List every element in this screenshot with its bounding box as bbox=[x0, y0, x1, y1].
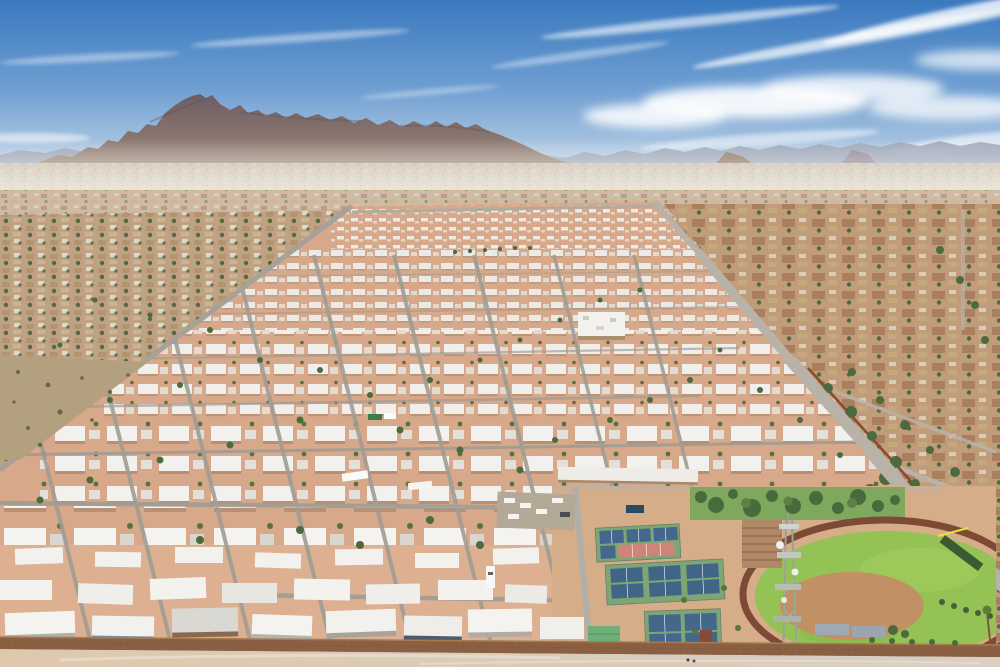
microwave-dish bbox=[792, 569, 799, 576]
blue-container bbox=[626, 505, 644, 513]
pickleball-courts-upper bbox=[595, 524, 681, 562]
pedestrian bbox=[693, 660, 696, 663]
green-lawn-park bbox=[690, 487, 905, 520]
red-shed bbox=[700, 630, 712, 642]
bleachers bbox=[742, 520, 782, 568]
community-building bbox=[578, 312, 625, 340]
haze-overlay bbox=[0, 138, 1000, 190]
microwave-dish bbox=[781, 597, 787, 603]
microwave-dish bbox=[776, 541, 784, 549]
green-roof-building bbox=[588, 626, 620, 643]
pedestrian bbox=[687, 659, 690, 662]
clubhouse-strip bbox=[558, 467, 698, 485]
aerial-photo bbox=[0, 0, 1000, 667]
pickleball-courts-middle bbox=[605, 559, 725, 605]
